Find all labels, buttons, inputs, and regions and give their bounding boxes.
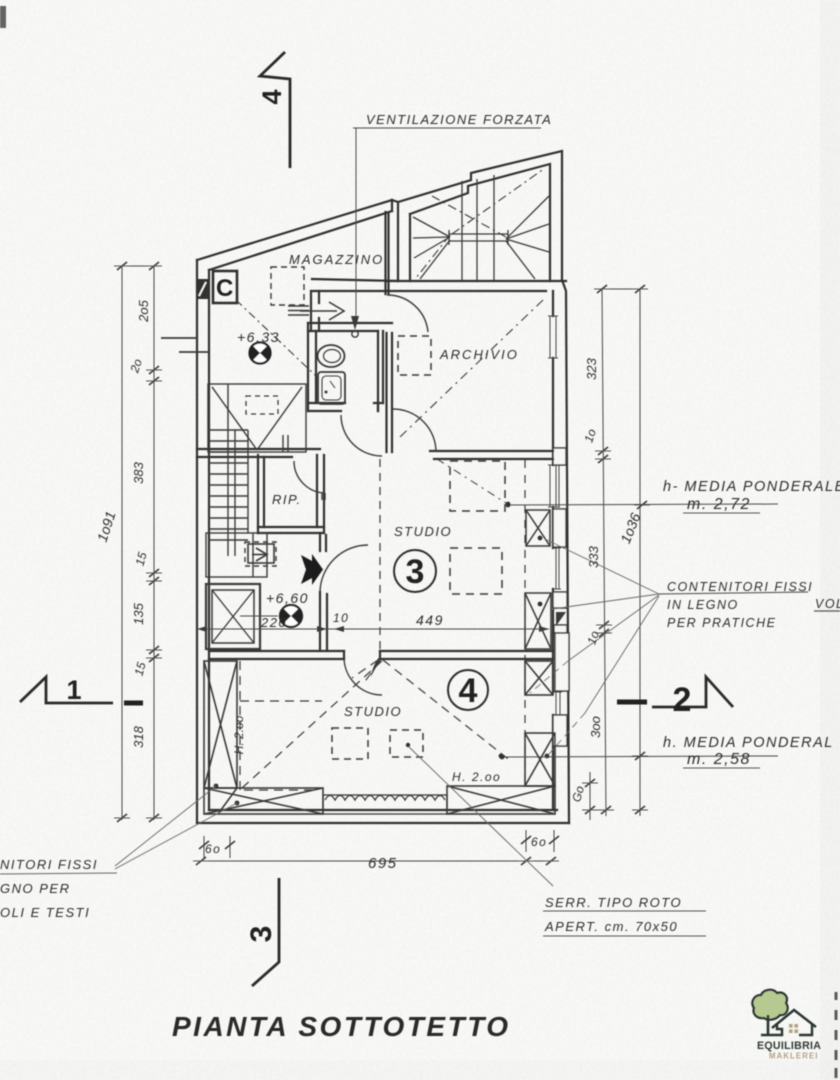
svg-text:383: 383 xyxy=(131,461,146,483)
svg-text:PIANTA SOTTOTETTO: PIANTA SOTTOTETTO xyxy=(172,1011,511,1042)
svg-text:PER PRATICHE: PER PRATICHE xyxy=(667,616,776,630)
svg-text:318: 318 xyxy=(131,725,146,747)
svg-text:RIP.: RIP. xyxy=(272,492,302,507)
svg-text:4: 4 xyxy=(459,672,478,710)
svg-text:2o5: 2o5 xyxy=(136,299,151,322)
svg-text:EQUILIBRIA: EQUILIBRIA xyxy=(757,1040,821,1052)
svg-text:m. 2,58: m. 2,58 xyxy=(687,751,751,768)
svg-text:H. 2.oo: H. 2.oo xyxy=(452,770,501,784)
svg-text:10: 10 xyxy=(333,611,349,625)
svg-text:IN LEGNO: IN LEGNO xyxy=(667,598,739,612)
svg-text:MAGAZZINO: MAGAZZINO xyxy=(289,252,384,267)
svg-text:333: 333 xyxy=(586,545,601,567)
svg-text:+6,60: +6,60 xyxy=(266,590,309,606)
svg-text:695: 695 xyxy=(368,855,398,872)
svg-text:C: C xyxy=(216,275,233,302)
svg-text:3: 3 xyxy=(245,926,278,943)
svg-text:NITORI FISSI: NITORI FISSI xyxy=(0,857,98,872)
svg-text:2: 2 xyxy=(673,681,692,719)
svg-text:h. MEDIA PONDERAL: h. MEDIA PONDERAL xyxy=(663,735,834,751)
svg-text:h- MEDIA PONDERALE: h- MEDIA PONDERALE xyxy=(663,479,840,495)
svg-text:ARCHIVIO: ARCHIVIO xyxy=(439,347,519,362)
svg-text:3: 3 xyxy=(406,553,425,591)
svg-text:VENTILAZIONE FORZATA: VENTILAZIONE FORZATA xyxy=(366,112,552,127)
svg-text:6o: 6o xyxy=(531,835,547,849)
svg-text:STUDIO: STUDIO xyxy=(394,524,452,539)
svg-text:323: 323 xyxy=(584,357,599,379)
svg-text:220: 220 xyxy=(260,615,287,630)
svg-text:1: 1 xyxy=(66,675,81,705)
svg-text:STUDIO: STUDIO xyxy=(344,704,402,719)
svg-text:3oo: 3oo xyxy=(588,716,603,738)
svg-text:m. 2,72: m. 2,72 xyxy=(687,496,751,513)
svg-text:VOL: VOL xyxy=(815,597,840,611)
svg-text:H. 2.oo: H. 2.oo xyxy=(232,715,246,754)
svg-text:4: 4 xyxy=(257,89,287,104)
svg-text:OLI E TESTI: OLI E TESTI xyxy=(0,905,90,920)
svg-text:SERR. TIPO ROTO: SERR. TIPO ROTO xyxy=(545,895,682,910)
svg-text:+6,33: +6,33 xyxy=(237,329,280,345)
svg-text:449: 449 xyxy=(416,612,444,628)
svg-text:6o: 6o xyxy=(205,842,221,856)
svg-text:MAKLEREI: MAKLEREI xyxy=(769,1052,819,1061)
svg-text:135: 135 xyxy=(131,602,146,624)
svg-text:GNO PER: GNO PER xyxy=(0,881,70,896)
svg-text:APERT. cm. 70x50: APERT. cm. 70x50 xyxy=(544,919,678,934)
svg-text:CONTENITORI FISSI: CONTENITORI FISSI xyxy=(667,580,813,594)
